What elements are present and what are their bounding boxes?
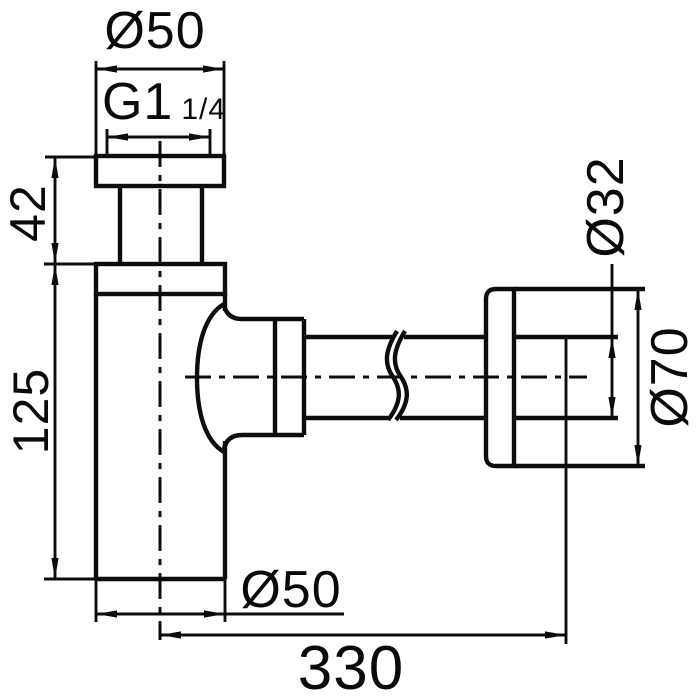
dim-label-total-length: 330: [298, 638, 404, 700]
thread-size-fraction: 1/4: [181, 93, 226, 126]
dim-label-body-height: 125: [6, 368, 56, 454]
arrow-top-dia-right: [203, 65, 224, 72]
dimension-extension-lines: [44, 61, 225, 622]
arrow-bottom-dia-right: [204, 610, 225, 617]
arrow-pipe-dia-bottom: [608, 397, 615, 418]
arrow-pipe-dia-top: [608, 337, 615, 358]
arrow-42-bottom: [51, 243, 58, 264]
dim-label-inlet-height: 42: [3, 184, 53, 242]
wall-flange: [486, 289, 645, 644]
outlet-dome-top-edge: [224, 305, 304, 319]
trap-body: [96, 294, 304, 579]
dim-label-flange-diameter: Ø70: [644, 326, 696, 427]
arrow-125-top: [51, 264, 58, 285]
arrow-42-top: [51, 157, 58, 178]
dim-label-thread-size: G11/4: [102, 76, 226, 128]
arrow-flange-dia-bottom: [634, 445, 641, 466]
arrow-flange-dia-top: [634, 289, 641, 310]
arrow-thread-left: [107, 133, 128, 140]
arrow-total-right: [545, 631, 566, 638]
technical-drawing-canvas: Ø50 G11/4 42 125 Ø50 330 Ø32 Ø70: [0, 0, 700, 700]
dim-label-pipe-diameter: Ø32: [580, 156, 632, 257]
arrow-top-dia-left: [96, 65, 117, 72]
dimension-arrows: [51, 65, 641, 638]
arrow-bottom-dia-left: [96, 610, 117, 617]
dim-label-top-diameter: Ø50: [104, 5, 205, 57]
dim-label-body-diameter: Ø50: [240, 564, 341, 616]
outlet-dome-bottom-edge: [224, 435, 304, 449]
arrow-thread-right: [189, 133, 210, 140]
thread-size-main: G1: [102, 73, 173, 131]
arrow-total-left: [160, 631, 181, 638]
arrow-125-bottom: [51, 558, 58, 579]
